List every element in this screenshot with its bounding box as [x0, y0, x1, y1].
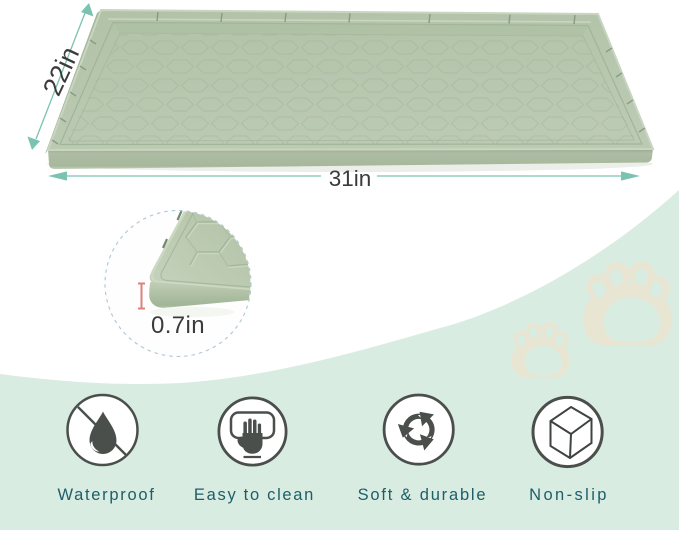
svg-text:Non-slip: Non-slip [529, 486, 609, 504]
svg-text:31in: 31in [329, 166, 372, 191]
svg-text:Soft & durable: Soft & durable [358, 486, 488, 504]
svg-text:Waterproof: Waterproof [57, 486, 155, 504]
svg-text:Easy to clean: Easy to clean [194, 486, 315, 504]
svg-text:0.7in: 0.7in [151, 312, 205, 339]
